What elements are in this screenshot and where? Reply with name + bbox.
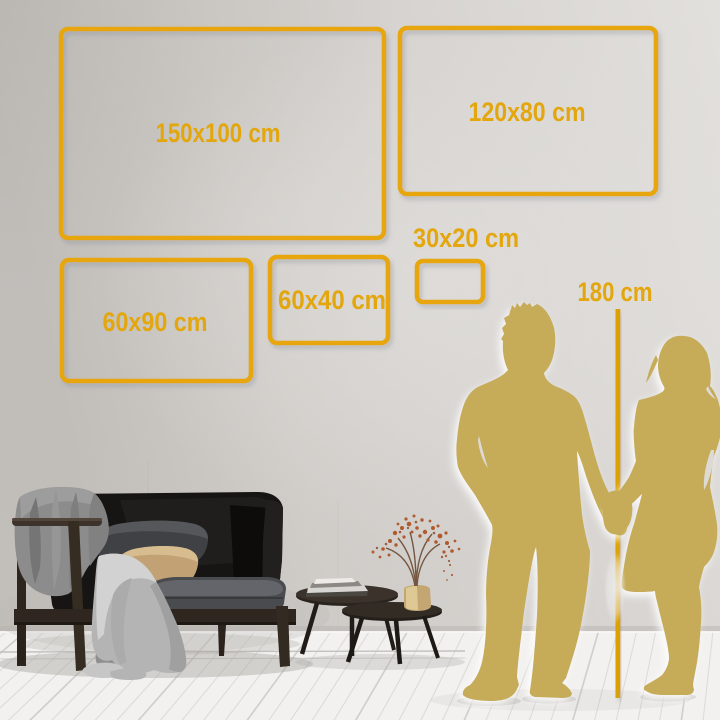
svg-text:120x80 cm: 120x80 cm — [469, 97, 586, 127]
svg-text:60x40 cm: 60x40 cm — [278, 285, 386, 315]
svg-text:30x20 cm: 30x20 cm — [413, 223, 519, 253]
svg-text:60x90 cm: 60x90 cm — [103, 307, 208, 337]
svg-text:180 cm: 180 cm — [578, 277, 653, 307]
svg-text:150x100 cm: 150x100 cm — [156, 118, 281, 148]
